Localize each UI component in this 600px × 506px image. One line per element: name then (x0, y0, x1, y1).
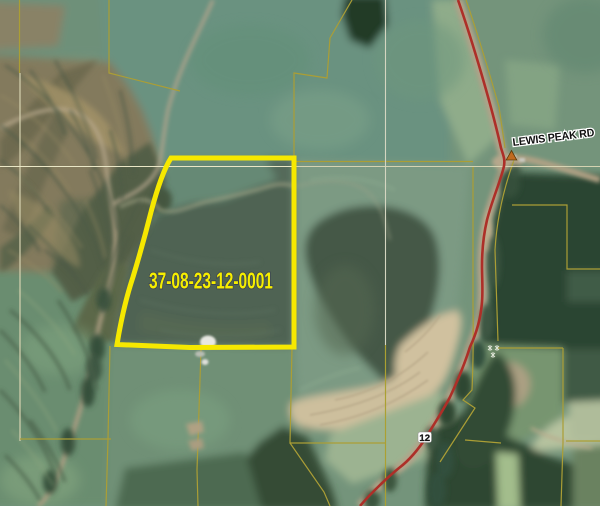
svg-text:37-08-23-12-0001: 37-08-23-12-0001 (149, 268, 273, 294)
svg-text:12: 12 (419, 433, 430, 444)
